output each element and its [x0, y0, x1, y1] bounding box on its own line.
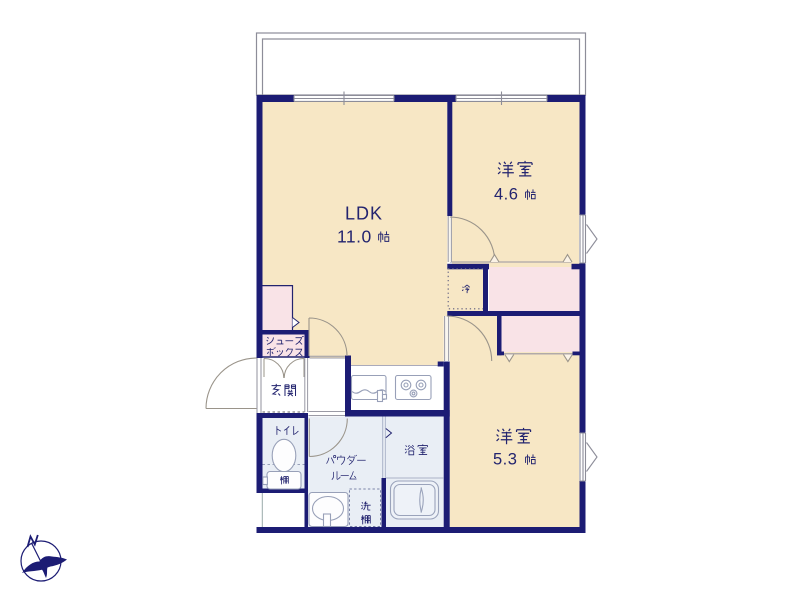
svg-text:5.3: 5.3: [493, 451, 517, 469]
svg-text:LDK: LDK: [345, 204, 383, 224]
svg-text:4.6: 4.6: [494, 186, 518, 204]
svg-text:11.0: 11.0: [337, 227, 372, 247]
